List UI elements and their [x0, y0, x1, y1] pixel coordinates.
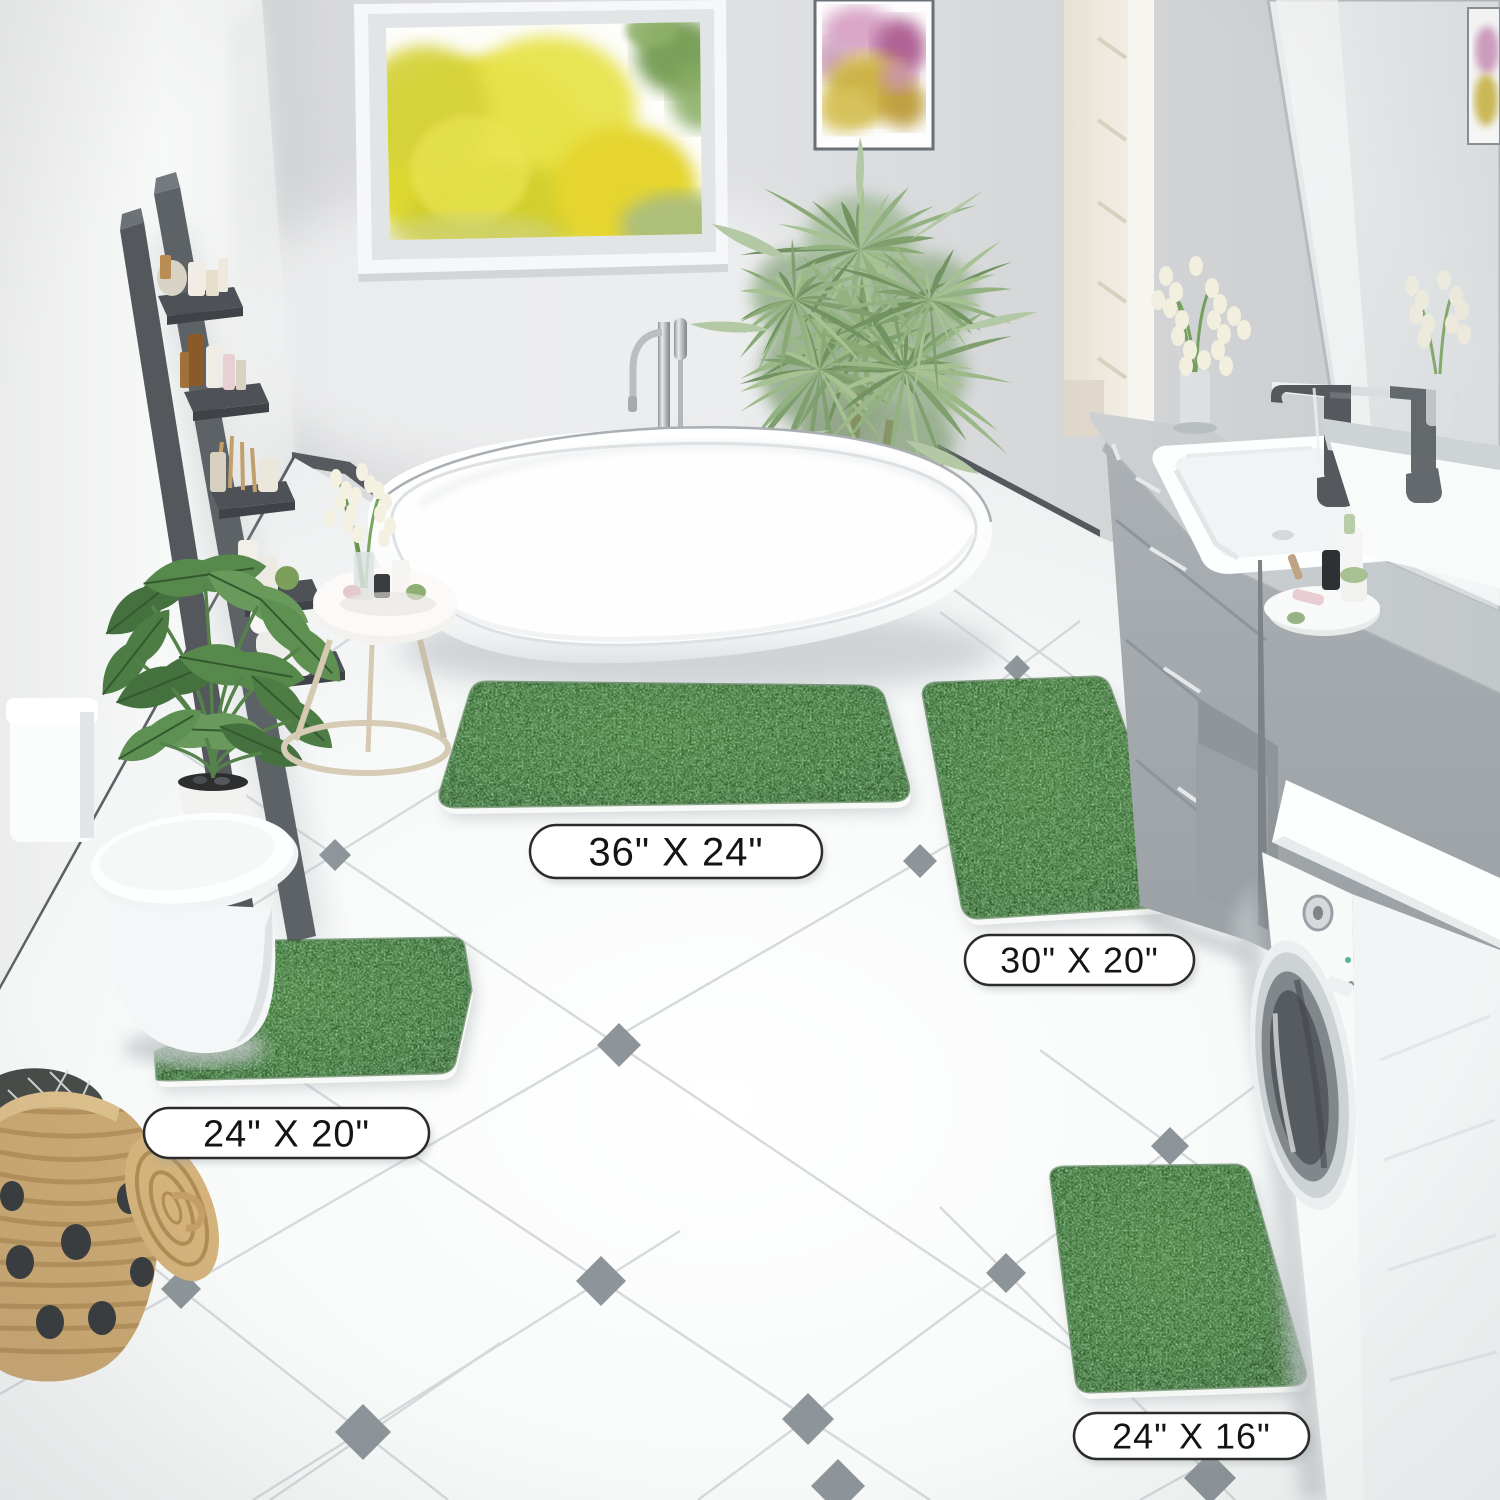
svg-text:36" X 24": 36" X 24" — [588, 831, 763, 875]
svg-text:24" X 16": 24" X 16" — [1112, 1416, 1271, 1457]
svg-text:24" X 20": 24" X 20" — [203, 1113, 370, 1155]
svg-text:30" X 20": 30" X 20" — [1000, 940, 1159, 981]
